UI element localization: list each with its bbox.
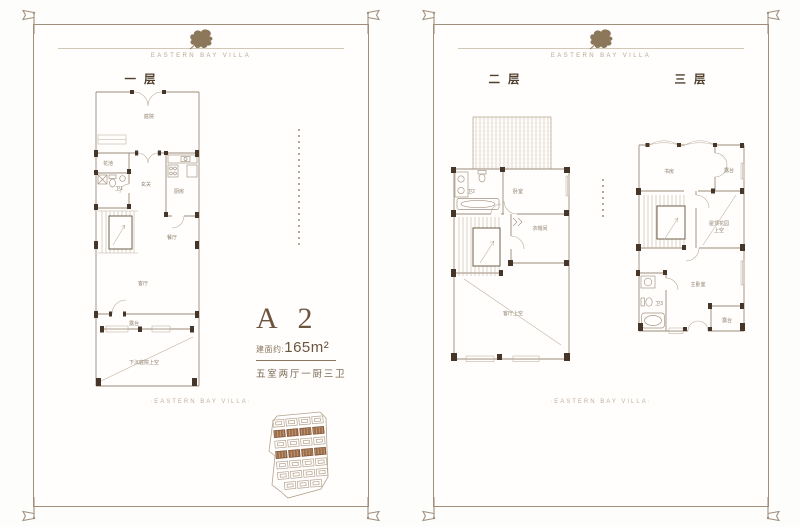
room-label-master-bedroom: 主卧室: [690, 281, 705, 288]
room-label-sunken-void: 下沉庭院上空: [129, 359, 159, 366]
panel-floor1: EASTERN BAY VILLA 一层: [33, 24, 369, 507]
unit-name: A 2: [256, 304, 346, 334]
floor3-title: 三层: [644, 71, 736, 87]
room-label-roof-garden-2: 上空: [714, 227, 724, 234]
room-label-courtyard: 庭院: [144, 113, 154, 120]
brand-footer-tagline: ·EASTERN BAY VILLA·: [434, 399, 768, 405]
room-label-terrace: 露台: [129, 320, 139, 327]
roof-hatch-area: [473, 117, 551, 169]
floor2-title: 二层: [458, 71, 550, 87]
brand-tagline: EASTERN BAY VILLA: [34, 53, 368, 59]
floor1-title: 一层: [94, 71, 186, 87]
leaf-logo-icon: [186, 29, 216, 51]
vertical-dotted-deco: [298, 129, 300, 247]
site-key-plan: [257, 409, 343, 503]
floorplan-second-floor: 卫2 卧室 衣帽间 客厅上空: [451, 113, 573, 363]
room-label-dining: 餐厅: [167, 234, 177, 241]
floorplan-sheet: EASTERN BAY VILLA 一层: [0, 0, 800, 527]
corner-ornament-icon: [362, 497, 388, 523]
floorplan-third-floor: 书房 露台 屋顶花园 上空 主卧室 卫3 露台: [636, 133, 749, 339]
brand-tagline: EASTERN BAY VILLA: [434, 53, 768, 59]
brand-footer-tagline: ·EASTERN BAY VILLA·: [34, 399, 368, 405]
room-label-study: 书房: [664, 168, 674, 175]
room-label-living: 客厅: [138, 280, 148, 287]
unit-area: 建面约: 165m²: [256, 339, 346, 356]
unit-layout-desc: 五室两厅一厨三卫: [256, 366, 346, 380]
corner-ornament-icon: [762, 497, 788, 523]
room-label-terrace-upper: 露台: [724, 167, 734, 174]
room-label-kitchen: 厨房: [174, 188, 184, 195]
corner-ornament-icon: [14, 497, 40, 523]
panel-floor2-floor3: EASTERN BAY VILLA 二层 三层: [433, 24, 769, 507]
corner-ornament-icon: [362, 8, 388, 34]
corner-ornament-icon: [414, 497, 440, 523]
room-label-foyer: 玄关: [141, 181, 151, 188]
corner-ornament-icon: [414, 8, 440, 34]
room-label-flower-bed: 花池: [103, 160, 113, 167]
unit-info-block: A 2 建面约: 165m² 五室两厅一厨三卫: [256, 304, 346, 380]
leaf-logo-icon: [586, 29, 616, 51]
corner-ornament-icon: [762, 8, 788, 34]
room-label-living-void: 客厅上空: [503, 310, 523, 317]
room-label-roof-garden-1: 屋顶花园: [709, 220, 729, 227]
unit-divider: [256, 360, 336, 361]
room-label-cloakroom: 衣帽间: [532, 225, 547, 232]
corner-ornament-icon: [14, 8, 40, 34]
unit-area-value: 165m²: [284, 339, 329, 356]
room-label-bath2: 卫2: [467, 189, 475, 195]
room-label-terrace-lower: 露台: [722, 317, 732, 324]
vertical-dotted-deco: [602, 179, 604, 219]
floorplan-first-floor: 庭院 花池 卫1 玄关 厨房 餐厅 客厅 露台 下沉庭院上空: [94, 89, 204, 395]
unit-area-prefix: 建面约:: [256, 344, 284, 355]
room-label-bath3: 卫3: [655, 301, 663, 307]
room-label-bath1: 卫1: [115, 186, 123, 192]
room-label-bedroom: 卧室: [513, 188, 523, 195]
